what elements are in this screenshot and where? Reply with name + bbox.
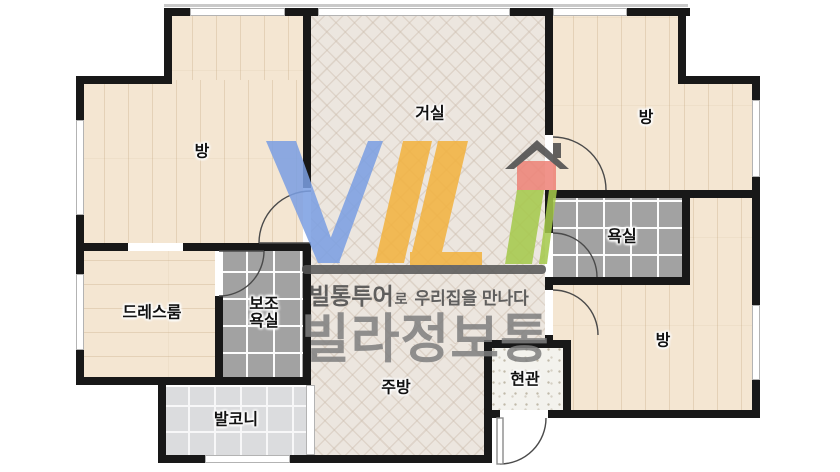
floor-plan: 방 거실 방 욕실 드레스룸 보조 욕실 발코니 주방 현관 방 빌통투어로우리… xyxy=(0,0,840,472)
wall-segment xyxy=(678,76,760,84)
room-label-bathroom: 욕실 xyxy=(607,230,636,247)
room-top-right-floor xyxy=(549,12,684,194)
room-label-bottom-right: 방 xyxy=(656,334,671,351)
wall-segment xyxy=(76,377,311,385)
room-label-top-left: 방 xyxy=(195,145,210,162)
watermark-brand-name: 빌라정보통 xyxy=(301,313,550,366)
tagline-rest: 우리집을 만나다 xyxy=(415,284,529,309)
room-top-right-floor xyxy=(684,80,756,194)
tagline-particle: 로 xyxy=(395,289,408,309)
wall-segment xyxy=(76,76,172,84)
wall-segment xyxy=(563,340,571,418)
door-opening xyxy=(545,135,553,190)
room-label-kitchen: 주방 xyxy=(381,381,410,398)
wall-segment xyxy=(545,277,690,285)
door-opening xyxy=(128,243,183,251)
door-opening xyxy=(303,188,311,243)
wall-segment xyxy=(545,190,760,198)
window xyxy=(76,120,84,215)
front-door-leaf xyxy=(497,418,503,464)
wall-segment xyxy=(678,8,686,84)
window xyxy=(190,8,285,16)
room-label-balcony: 발코니 xyxy=(214,413,258,430)
room-label-sub-bathroom: 보조 욕실 xyxy=(249,297,278,331)
wall-segment xyxy=(158,383,166,463)
window xyxy=(752,100,760,177)
window xyxy=(76,274,84,350)
room-label-living: 거실 xyxy=(415,107,444,124)
window xyxy=(318,8,510,16)
room-top-left-floor xyxy=(80,80,307,247)
balcony-sliding-door xyxy=(306,385,315,455)
room-label-top-right: 방 xyxy=(639,111,654,128)
door-arc xyxy=(500,418,546,464)
window xyxy=(553,8,627,16)
room-label-entrance: 현관 xyxy=(510,373,539,390)
wall-segment xyxy=(76,243,311,251)
door-opening xyxy=(215,251,223,296)
wall-segment xyxy=(164,8,172,84)
window xyxy=(205,455,290,463)
door-opening xyxy=(545,233,553,277)
front-door-opening xyxy=(500,410,548,418)
tagline-brand: 빌통투어 xyxy=(309,277,394,311)
room-label-dress-room: 드레스룸 xyxy=(123,306,182,323)
window xyxy=(752,305,760,380)
watermark-tagline: 빌통투어로우리집을 만나다 xyxy=(309,277,529,311)
wall-segment xyxy=(682,198,690,285)
top-edge-line xyxy=(164,4,688,7)
